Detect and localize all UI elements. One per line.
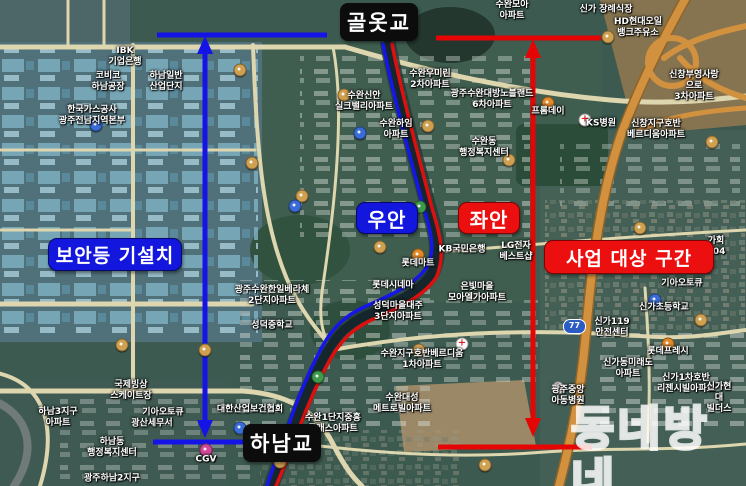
map-screenshot: IBK 기업은행코비코 하남공장하남일반 산업단지한국가스공사 광주전남지역본부…	[0, 0, 746, 486]
security-light-installed-label: 보안등 기설치	[48, 238, 182, 271]
project-section-label: 사업 대상 구간	[544, 240, 714, 274]
right-bank-label: 우안	[356, 202, 418, 234]
watermark: 동네방네	[571, 404, 746, 486]
left-bank-label: 좌안	[458, 202, 520, 234]
bridge-label-hanamgyo: 하남교	[243, 424, 321, 462]
route-77-shield: 77	[563, 319, 586, 334]
bridge-label-golotgyo: 골옷교	[340, 3, 418, 41]
